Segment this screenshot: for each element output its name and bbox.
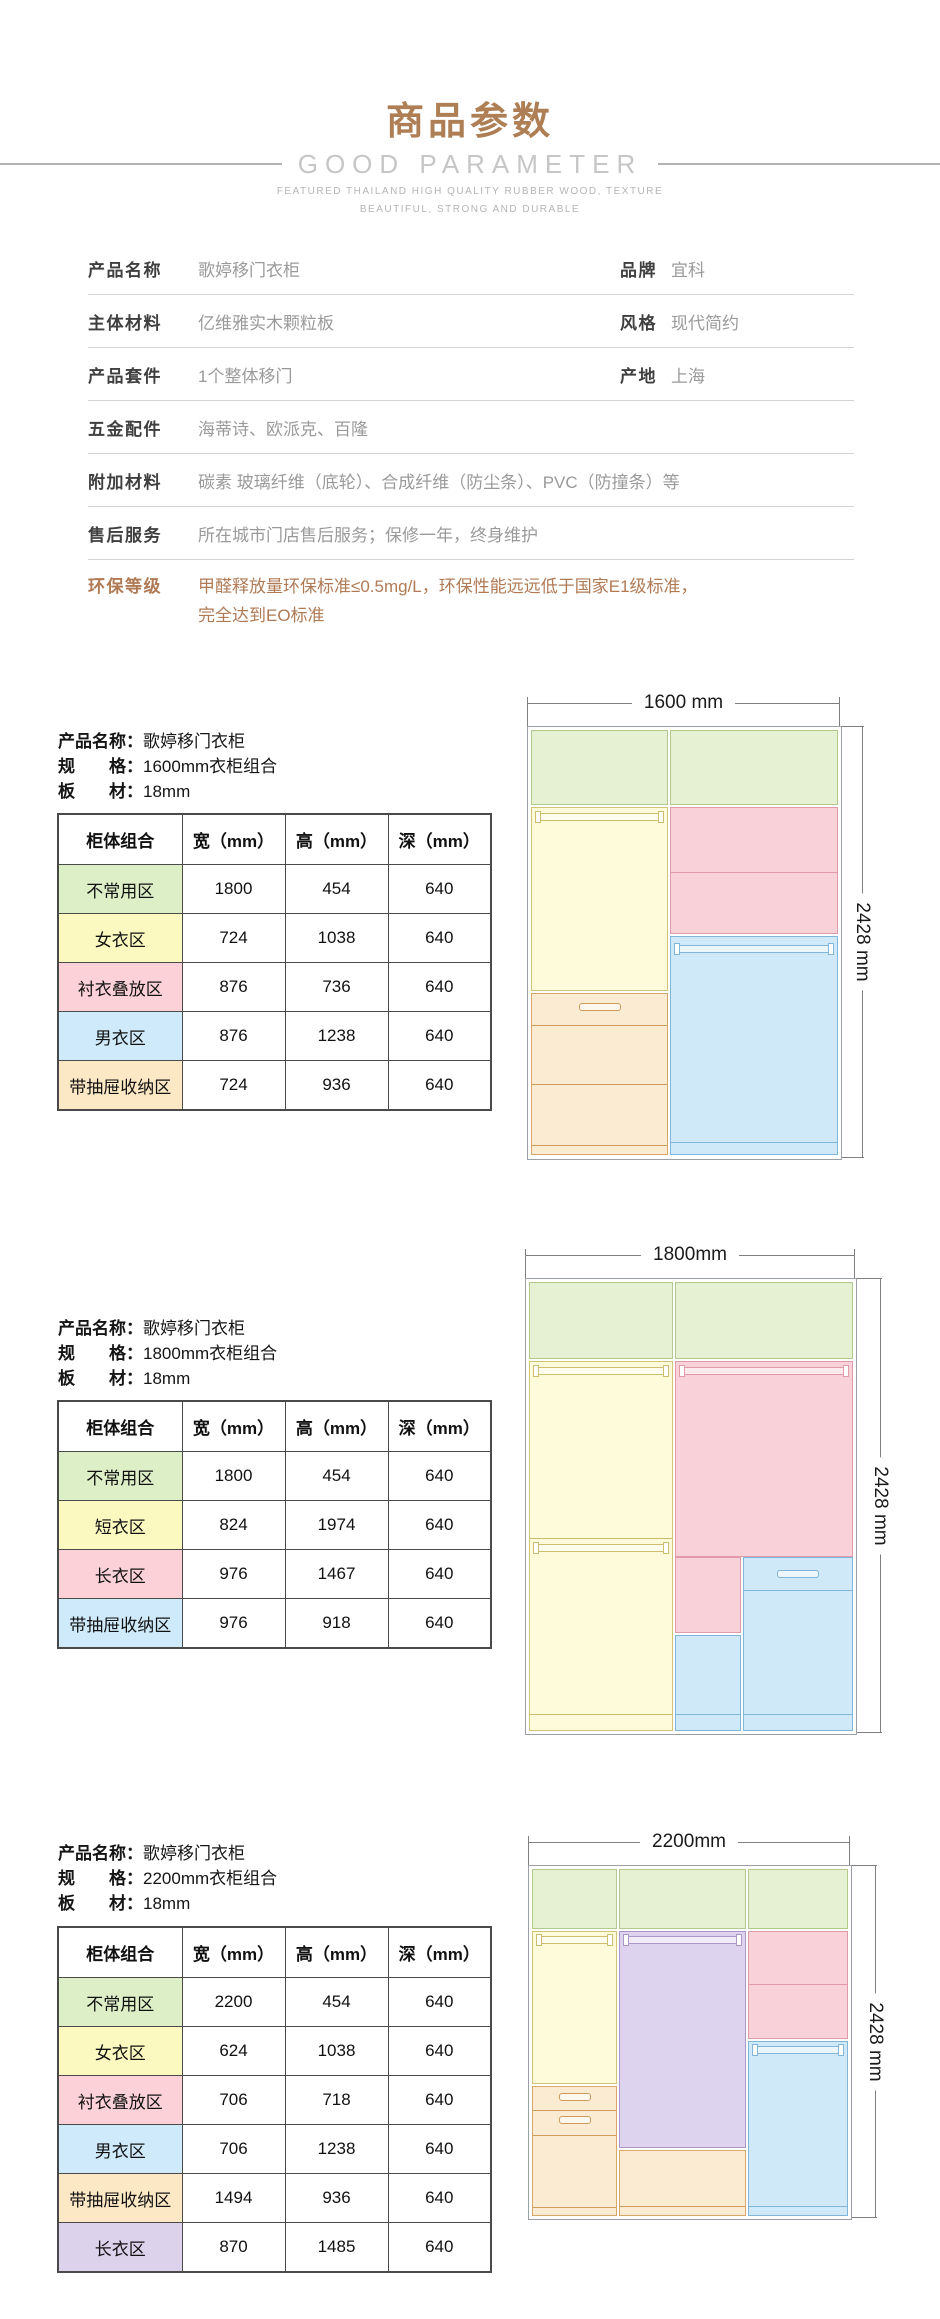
meta-label: 产品名称：	[58, 1844, 143, 1863]
zone-name-cell: 带抽屉收纳区	[58, 1061, 182, 1111]
depth-cell: 640	[388, 1599, 491, 1649]
hanging-rod	[535, 1367, 667, 1375]
width-cell: 624	[182, 2027, 285, 2076]
height-dimension-label: 2428 mm	[851, 893, 873, 990]
section-2200-meta: 产品名称：歌婷移门衣柜 规 格：2200mm衣柜组合 板 材：18mm	[58, 1841, 277, 1916]
height-dimension-label: 2428 mm	[869, 1457, 891, 1554]
spec-value: 亿维雅实木颗粒板	[198, 309, 334, 334]
width-cell: 724	[182, 1061, 285, 1111]
spec-row-product-name: 产品名称 歌婷移门衣柜 品牌 宜科	[88, 242, 854, 295]
width-cell: 1800	[182, 865, 285, 914]
zone-seldom-use	[532, 1869, 617, 1929]
height-cell: 1467	[285, 1550, 388, 1599]
table-header-row: 柜体组合 宽（mm） 高（mm） 深（mm）	[58, 1927, 491, 1978]
shelf-line	[749, 1984, 847, 1985]
width-dimension-line: 1600 mm	[527, 693, 840, 713]
shelf-line	[671, 1142, 837, 1143]
height-cell: 936	[285, 1061, 388, 1111]
drawer-handle	[559, 2093, 591, 2101]
meta-value: 1800mm衣柜组合	[143, 1344, 277, 1363]
zone-drawer-storage	[619, 2150, 746, 2216]
width-cell: 976	[182, 1550, 285, 1599]
meta-value: 18mm	[143, 1894, 190, 1913]
zone-long-clothes	[619, 1931, 746, 2148]
spec-label: 五金配件	[88, 415, 184, 440]
meta-line-spec: 规 格：2200mm衣柜组合	[58, 1866, 277, 1891]
meta-line-board: 板 材：18mm	[58, 1891, 277, 1916]
width-cell: 1800	[182, 1452, 285, 1501]
spec-row-kit: 产品套件 1个整体移门 产地 上海	[88, 348, 854, 401]
table-row: 带抽屉收纳区 724 936 640	[58, 1061, 491, 1111]
table-row: 长衣区 870 1485 640	[58, 2223, 491, 2273]
spec-value: 现代简约	[671, 309, 739, 334]
hanging-rod	[537, 813, 662, 821]
table-row: 带抽屉收纳区 1494 936 640	[58, 2174, 491, 2223]
zone-name-cell: 男衣区	[58, 2125, 182, 2174]
zone-seldom-use	[670, 730, 838, 805]
zone-drawer-storage	[531, 993, 668, 1155]
eco-line2: 完全达到EO标准	[198, 606, 325, 625]
meta-line-board: 板 材：18mm	[58, 1366, 277, 1391]
shelf-line	[530, 1714, 672, 1715]
spec-row-additional-material: 附加材料 碳素 玻璃纤维（底轮）、合成纤维（防尘条）、PVC（防撞条）等	[88, 454, 854, 507]
shelf-line	[532, 1025, 667, 1026]
zone-name-cell: 衬衣叠放区	[58, 2076, 182, 2125]
meta-value: 18mm	[143, 782, 190, 801]
table-row: 短衣区 824 1974 640	[58, 1501, 491, 1550]
header-cell: 高（mm）	[285, 1927, 388, 1978]
table-row: 男衣区 876 1238 640	[58, 1012, 491, 1061]
zone-shirt-stack	[748, 1931, 848, 2039]
drawer-handle	[559, 2116, 591, 2124]
meta-value: 1600mm衣柜组合	[143, 757, 277, 776]
dim-line	[528, 1842, 640, 1843]
spec-pair-origin: 产地 上海	[620, 348, 705, 400]
meta-line-name: 产品名称：歌婷移门衣柜	[58, 1841, 277, 1866]
spec-row-eco-grade: 环保等级 甲醛释放量环保标准≤0.5mg/L，环保性能远远低于国家E1级标准， …	[88, 560, 854, 640]
page-title: 商品参数	[0, 90, 940, 145]
zone-name-cell: 带抽屉收纳区	[58, 1599, 182, 1649]
zone-shirt-stack	[670, 807, 838, 934]
meta-value: 歌婷移门衣柜	[143, 732, 245, 751]
height-dimension-label: 2428 mm	[864, 1993, 886, 2090]
depth-cell: 640	[388, 865, 491, 914]
shelf-line	[671, 872, 837, 873]
zone-seldom-use	[619, 1869, 746, 1929]
height-dimension-line: 2428 mm	[852, 726, 872, 1158]
table-row: 女衣区 724 1038 640	[58, 914, 491, 963]
depth-cell: 640	[388, 2223, 491, 2273]
table-row: 衬衣叠放区 876 736 640	[58, 963, 491, 1012]
meta-label: 产品名称：	[58, 1319, 143, 1338]
zone-name-cell: 女衣区	[58, 2027, 182, 2076]
shelf-line	[533, 2135, 616, 2136]
table-row: 不常用区 1800 454 640	[58, 1452, 491, 1501]
shelf-line	[749, 2206, 847, 2207]
meta-label: 规 格：	[58, 1344, 143, 1363]
zone-drawer-storage	[532, 2086, 617, 2216]
spec-label: 风格	[620, 309, 657, 334]
meta-label: 板 材：	[58, 1894, 143, 1913]
width-cell: 876	[182, 1012, 285, 1061]
header-cell: 深（mm）	[388, 1401, 491, 1452]
section-1600-meta: 产品名称：歌婷移门衣柜 规 格：1600mm衣柜组合 板 材：18mm	[58, 729, 277, 804]
zone-name-cell: 不常用区	[58, 865, 182, 914]
height-cell: 454	[285, 865, 388, 914]
width-cell: 706	[182, 2076, 285, 2125]
hanging-rod	[538, 1936, 611, 1944]
spec-label: 主体材料	[88, 309, 184, 334]
header-cell: 深（mm）	[388, 814, 491, 865]
zone-men-clothes	[670, 936, 838, 1155]
shelf-line	[530, 1538, 672, 1539]
width-dimension-label: 2200mm	[640, 1831, 738, 1853]
meta-value: 歌婷移门衣柜	[143, 1844, 245, 1863]
depth-cell: 640	[388, 1061, 491, 1111]
height-cell: 718	[285, 2076, 388, 2125]
wardrobe-outline	[525, 1278, 857, 1735]
depth-cell: 640	[388, 2027, 491, 2076]
width-cell: 976	[182, 1599, 285, 1649]
table-row: 衬衣叠放区 706 718 640	[58, 2076, 491, 2125]
meta-label: 产品名称：	[58, 732, 143, 751]
depth-cell: 640	[388, 1452, 491, 1501]
hanging-rod	[625, 1936, 740, 1944]
spec-row-hardware: 五金配件 海蒂诗、欧派克、百隆	[88, 401, 854, 454]
header-cell: 高（mm）	[285, 1401, 388, 1452]
meta-line-spec: 规 格：1800mm衣柜组合	[58, 1341, 277, 1366]
wardrobe-outline	[527, 726, 842, 1160]
width-cell: 706	[182, 2125, 285, 2174]
subtitle-right-line	[658, 163, 940, 165]
height-cell: 454	[285, 1978, 388, 2027]
zone-name-cell: 女衣区	[58, 914, 182, 963]
width-cell: 2200	[182, 1978, 285, 2027]
spec-value: 碳素 玻璃纤维（底轮）、合成纤维（防尘条）、PVC（防撞条）等	[198, 468, 680, 493]
header-cell: 宽（mm）	[182, 814, 285, 865]
depth-cell: 640	[388, 963, 491, 1012]
table-row: 长衣区 976 1467 640	[58, 1550, 491, 1599]
height-dimension-line: 2428 mm	[865, 1865, 885, 2218]
table-header-row: 柜体组合 宽（mm） 高（mm） 深（mm）	[58, 1401, 491, 1452]
meta-line-name: 产品名称：歌婷移门衣柜	[58, 1316, 277, 1341]
spec-value: 1个整体移门	[198, 362, 292, 387]
shelf-line	[533, 2207, 616, 2208]
page-canvas: 商品参数 GOOD PARAMETER FEATURED THAILAND HI…	[0, 0, 940, 2319]
zone-long-clothes	[675, 1361, 853, 1557]
hanging-rod	[676, 945, 832, 953]
zone-name-cell: 衬衣叠放区	[58, 963, 182, 1012]
width-dimension-line: 1800mm	[525, 1245, 855, 1265]
hanging-rod	[535, 1544, 667, 1552]
width-dimension-label: 1800mm	[641, 1244, 739, 1266]
header-cell: 宽（mm）	[182, 1401, 285, 1452]
zone-name-cell: 长衣区	[58, 2223, 182, 2273]
zone-seldom-use	[529, 1282, 673, 1359]
table-row: 带抽屉收纳区 976 918 640	[58, 1599, 491, 1649]
drawer-handle	[777, 1570, 819, 1578]
spec-label: 附加材料	[88, 468, 184, 493]
spec-label: 产地	[620, 362, 657, 387]
header-cell: 柜体组合	[58, 814, 182, 865]
wardrobe-outline	[528, 1865, 852, 2220]
size-table-1600: 柜体组合 宽（mm） 高（mm） 深（mm） 不常用区 1800 454 640…	[57, 813, 492, 1111]
eco-line1: 甲醛释放量环保标准≤0.5mg/L，环保性能远远低于国家E1级标准，	[198, 577, 698, 596]
page-subtitle: GOOD PARAMETER	[282, 149, 659, 180]
depth-cell: 640	[388, 2174, 491, 2223]
depth-cell: 640	[388, 1012, 491, 1061]
height-cell: 736	[285, 963, 388, 1012]
shelf-line	[532, 1145, 667, 1146]
depth-cell: 640	[388, 1978, 491, 2027]
spec-row-material: 主体材料 亿维雅实木颗粒板 风格 现代简约	[88, 295, 854, 348]
zone-name-cell: 长衣区	[58, 1550, 182, 1599]
height-cell: 936	[285, 2174, 388, 2223]
zone-short-clothes	[529, 1361, 673, 1731]
zone-seldom-use	[748, 1869, 848, 1929]
dim-line	[739, 1255, 855, 1256]
size-table-2200: 柜体组合 宽（mm） 高（mm） 深（mm） 不常用区 2200 454 640…	[57, 1926, 492, 2273]
spec-pair-brand: 品牌 宜科	[620, 242, 705, 294]
meta-value: 歌婷移门衣柜	[143, 1319, 245, 1338]
zone-seldom-use	[675, 1282, 853, 1359]
spec-value: 甲醛释放量环保标准≤0.5mg/L，环保性能远远低于国家E1级标准， 完全达到E…	[198, 572, 838, 630]
width-cell: 724	[182, 914, 285, 963]
width-cell: 1494	[182, 2174, 285, 2223]
spec-label: 售后服务	[88, 521, 184, 546]
height-cell: 1238	[285, 2125, 388, 2174]
zone-long-clothes	[675, 1557, 741, 1633]
spec-pair-style: 风格 现代简约	[620, 295, 739, 347]
spec-value: 上海	[671, 362, 705, 387]
hanging-rod	[754, 2046, 842, 2054]
depth-cell: 640	[388, 914, 491, 963]
dim-line	[738, 1842, 850, 1843]
meta-value: 18mm	[143, 1369, 190, 1388]
meta-line-name: 产品名称：歌婷移门衣柜	[58, 729, 277, 754]
meta-line-board: 板 材：18mm	[58, 779, 277, 804]
table-row: 女衣区 624 1038 640	[58, 2027, 491, 2076]
spec-label: 环保等级	[88, 572, 184, 601]
zone-name-cell: 男衣区	[58, 1012, 182, 1061]
height-cell: 1038	[285, 914, 388, 963]
table-row: 男衣区 706 1238 640	[58, 2125, 491, 2174]
size-table-1800: 柜体组合 宽（mm） 高（mm） 深（mm） 不常用区 1800 454 640…	[57, 1400, 492, 1649]
zone-women-clothes	[532, 1931, 617, 2084]
table-header-row: 柜体组合 宽（mm） 高（mm） 深（mm）	[58, 814, 491, 865]
subtitle-left-line	[0, 163, 282, 165]
header-cell: 柜体组合	[58, 1401, 182, 1452]
height-cell: 454	[285, 1452, 388, 1501]
height-cell: 918	[285, 1599, 388, 1649]
shelf-line	[676, 1714, 740, 1715]
header-cell: 高（mm）	[285, 814, 388, 865]
zone-men-clothes	[748, 2041, 848, 2216]
depth-cell: 640	[388, 2076, 491, 2125]
height-cell: 1038	[285, 2027, 388, 2076]
zone-seldom-use	[531, 730, 668, 805]
meta-label: 规 格：	[58, 757, 143, 776]
depth-cell: 640	[388, 2125, 491, 2174]
width-cell: 870	[182, 2223, 285, 2273]
zone-name-cell: 不常用区	[58, 1978, 182, 2027]
spec-value: 所在城市门店售后服务；保修一年，终身维护	[198, 521, 538, 546]
meta-label: 板 材：	[58, 1369, 143, 1388]
dim-line	[525, 1255, 641, 1256]
subtitle-row: GOOD PARAMETER	[0, 150, 940, 178]
zone-women-clothes	[531, 807, 668, 991]
table-row: 不常用区 1800 454 640	[58, 865, 491, 914]
meta-label: 板 材：	[58, 782, 143, 801]
spec-value: 海蒂诗、欧派克、百隆	[198, 415, 368, 440]
zone-drawer-storage	[743, 1557, 853, 1731]
depth-cell: 640	[388, 1501, 491, 1550]
hanging-rod	[681, 1367, 847, 1375]
zone-name-cell: 不常用区	[58, 1452, 182, 1501]
spec-value: 宜科	[671, 256, 705, 281]
depth-cell: 640	[388, 1550, 491, 1599]
height-cell: 1974	[285, 1501, 388, 1550]
width-cell: 824	[182, 1501, 285, 1550]
shelf-line	[620, 2206, 745, 2207]
spec-label: 产品名称	[88, 256, 184, 281]
zone-name-cell: 短衣区	[58, 1501, 182, 1550]
shelf-line	[744, 1714, 852, 1715]
width-cell: 876	[182, 963, 285, 1012]
meta-label: 规 格：	[58, 1869, 143, 1888]
height-cell: 1485	[285, 2223, 388, 2273]
section-1800-meta: 产品名称：歌婷移门衣柜 规 格：1800mm衣柜组合 板 材：18mm	[58, 1316, 277, 1391]
spec-row-after-sales: 售后服务 所在城市门店售后服务；保修一年，终身维护	[88, 507, 854, 560]
shelf-line	[533, 2110, 616, 2111]
width-dimension-line: 2200mm	[528, 1832, 850, 1852]
header-cell: 柜体组合	[58, 1927, 182, 1978]
shelf-line	[532, 1084, 667, 1085]
meta-value: 2200mm衣柜组合	[143, 1869, 277, 1888]
dim-line	[527, 703, 632, 704]
spec-value: 歌婷移门衣柜	[198, 256, 300, 281]
tagline-line2: BEAUTIFUL, STRONG AND DURABLE	[0, 204, 940, 215]
shelf-line	[744, 1590, 852, 1591]
drawer-handle	[579, 1003, 621, 1011]
meta-line-spec: 规 格：1600mm衣柜组合	[58, 754, 277, 779]
width-dimension-label: 1600 mm	[632, 692, 735, 714]
product-spec-list: 产品名称 歌婷移门衣柜 品牌 宜科 主体材料 亿维雅实木颗粒板 风格 现代简约 …	[88, 242, 854, 640]
height-cell: 1238	[285, 1012, 388, 1061]
header-cell: 宽（mm）	[182, 1927, 285, 1978]
tagline-line1: FEATURED THAILAND HIGH QUALITY RUBBER WO…	[0, 186, 940, 197]
height-dimension-line: 2428 mm	[870, 1278, 890, 1733]
zone-name-cell: 带抽屉收纳区	[58, 2174, 182, 2223]
table-row: 不常用区 2200 454 640	[58, 1978, 491, 2027]
zone-drawer-storage	[675, 1635, 741, 1731]
header-cell: 深（mm）	[388, 1927, 491, 1978]
spec-label: 品牌	[620, 256, 657, 281]
dim-line	[735, 703, 840, 704]
spec-label: 产品套件	[88, 362, 184, 387]
